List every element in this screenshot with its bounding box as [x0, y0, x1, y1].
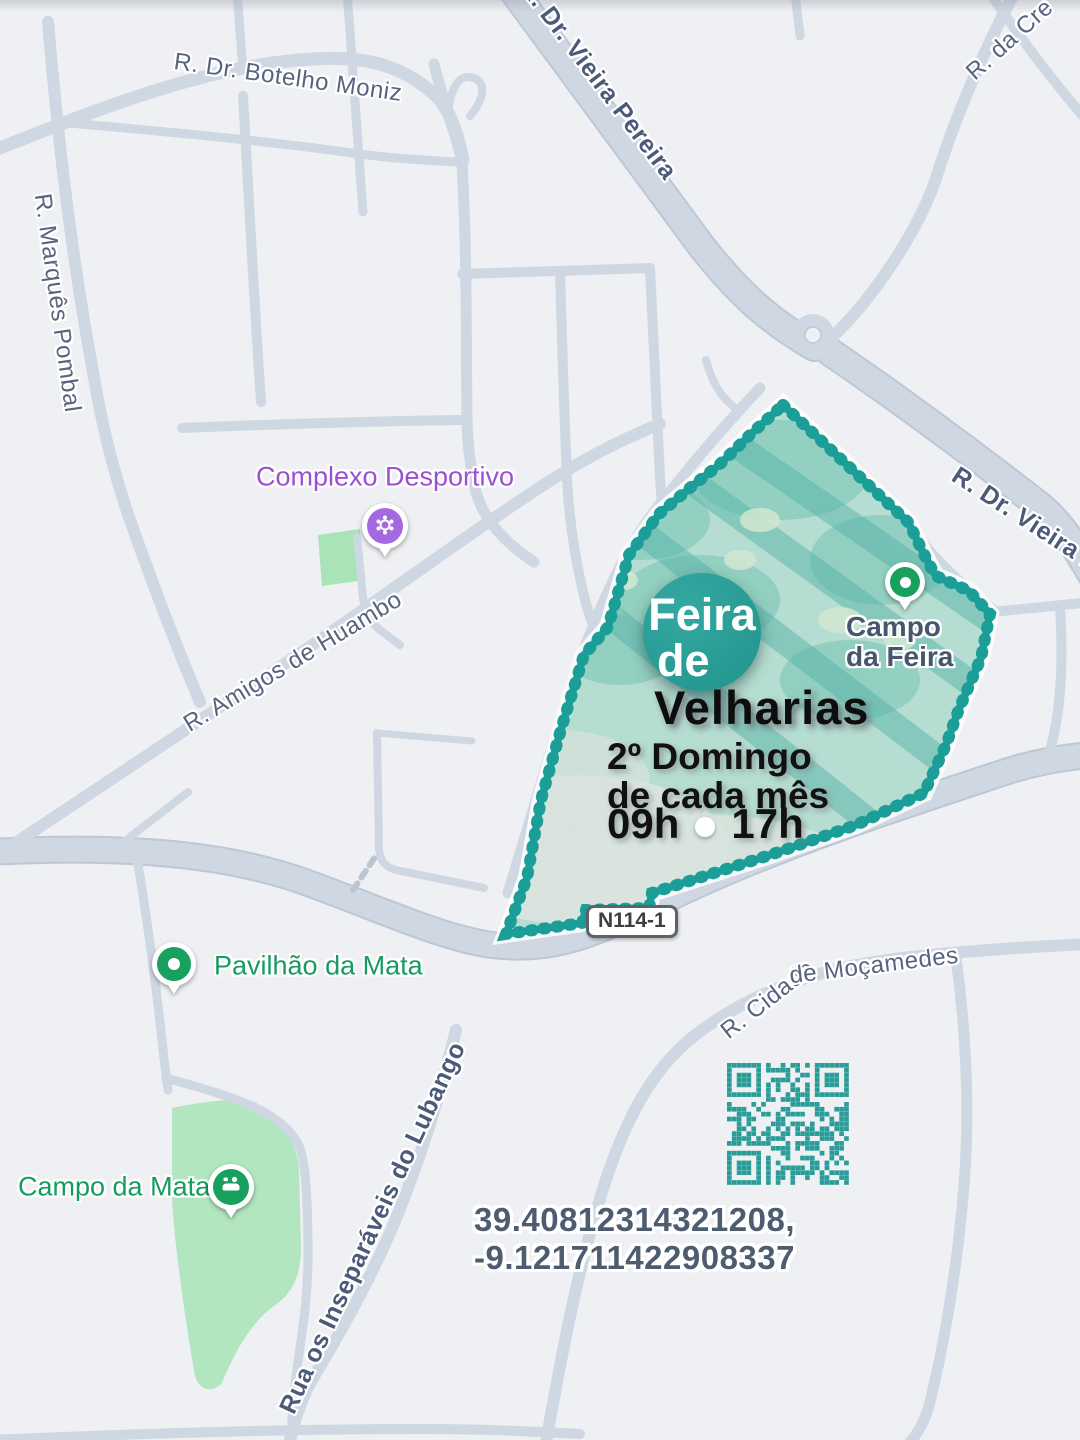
pin-campo-da-feira[interactable]: [885, 562, 925, 610]
time-separator-dot: [695, 817, 715, 837]
poi-label-campo-da-feira-line1: Campo: [846, 612, 953, 642]
place-dot-icon: [168, 958, 180, 970]
place-dot-icon: [900, 577, 911, 588]
feira-badge-line2: de: [657, 641, 761, 681]
overlay-schedule-line1: 2º Domingo: [607, 737, 829, 776]
poi-label-pavilhao-da-mata[interactable]: Pavilhão da Mata: [214, 951, 423, 982]
roundabout: [792, 314, 834, 356]
map-view[interactable]: R. Dr. Botelho Moniz R. Marquês Pombal R…: [0, 0, 1080, 1440]
poi-label-campo-da-feira[interactable]: Campo da Feira: [846, 612, 953, 672]
feira-badge-circle: Feira de: [643, 573, 761, 691]
coordinates-text: 39.40812314321208, -9.121711422908337: [474, 1201, 1080, 1277]
pin-complexo-desportivo[interactable]: [362, 503, 408, 557]
poi-label-complexo-desportivo[interactable]: Complexo Desportivo: [256, 462, 514, 493]
qr-code: [727, 1063, 849, 1185]
poi-label-campo-da-mata[interactable]: Campo da Mata: [18, 1172, 210, 1203]
overlay-time-close: 17h: [731, 800, 803, 848]
overlay-title: Velharias: [654, 680, 869, 735]
feira-badge-line1: Feira: [643, 589, 761, 641]
pin-campo-da-mata[interactable]: [208, 1164, 254, 1218]
poi-label-campo-da-feira-line2: da Feira: [846, 642, 953, 672]
overlay-time-open: 09h: [607, 800, 679, 848]
pin-pavilhao-da-mata[interactable]: [152, 942, 196, 994]
road-badge-n114: N114-1: [586, 905, 678, 938]
overlay-times: 09h 17h: [607, 800, 804, 848]
playground-icon: [219, 1173, 243, 1202]
sports-complex-icon: [373, 512, 397, 541]
